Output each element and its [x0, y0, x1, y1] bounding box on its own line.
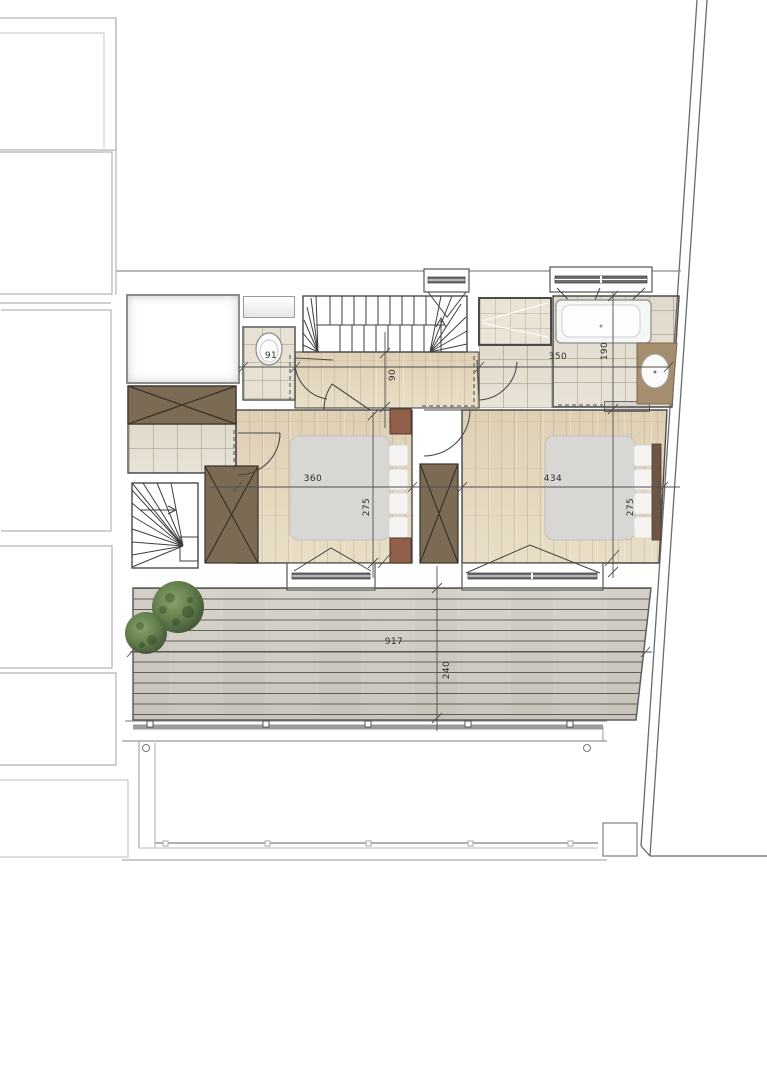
bedroom-left-door: [332, 384, 370, 410]
bathtub: [556, 300, 651, 343]
neighbor-outlines: [0, 18, 128, 857]
bed-left: [290, 409, 411, 563]
bushes: [125, 581, 204, 654]
dim-terrace-width: 917: [385, 637, 403, 647]
nightstand: [390, 538, 411, 563]
party-wall: [641, 0, 767, 856]
pillar: [603, 823, 637, 856]
dim-bedroom-right-width: 434: [544, 474, 562, 484]
bedroom-right-wardrobe: [420, 464, 458, 563]
bedroom-right-terrace-door: [462, 545, 603, 590]
dim-bathroom-width: 350: [549, 352, 567, 362]
wc-door: [295, 358, 333, 360]
dim-wc-width: 91: [265, 351, 277, 361]
winder-staircase: [132, 483, 198, 567]
bedroom-left-terrace-door: [287, 548, 375, 590]
dim-bedroom-left-width: 360: [304, 474, 322, 484]
dim-bedroom-left-depth: 275: [362, 498, 372, 516]
terrace-railing: [125, 721, 607, 752]
headboard: [652, 444, 661, 540]
storage-wardrobe: [128, 386, 236, 424]
plan-linework: [0, 0, 767, 1080]
dim-hallway-width: 90: [388, 369, 398, 381]
exterior-wall: [116, 18, 681, 295]
dim-terrace-depth: 240: [442, 661, 452, 679]
floor-plan: 91 90 350 190 360 275 434 275 917 240: [0, 0, 767, 1080]
bedroom-left-wardrobe: [205, 466, 258, 563]
terrace-structure: [122, 581, 651, 860]
lower-level-edge: [122, 727, 637, 860]
vanity: [637, 343, 677, 404]
shower-glass: [482, 303, 548, 337]
nightstand: [390, 409, 411, 434]
dim-bathroom-depth: 190: [600, 342, 610, 360]
dim-bedroom-right-depth: 275: [626, 498, 636, 516]
bed-right: [545, 436, 661, 540]
